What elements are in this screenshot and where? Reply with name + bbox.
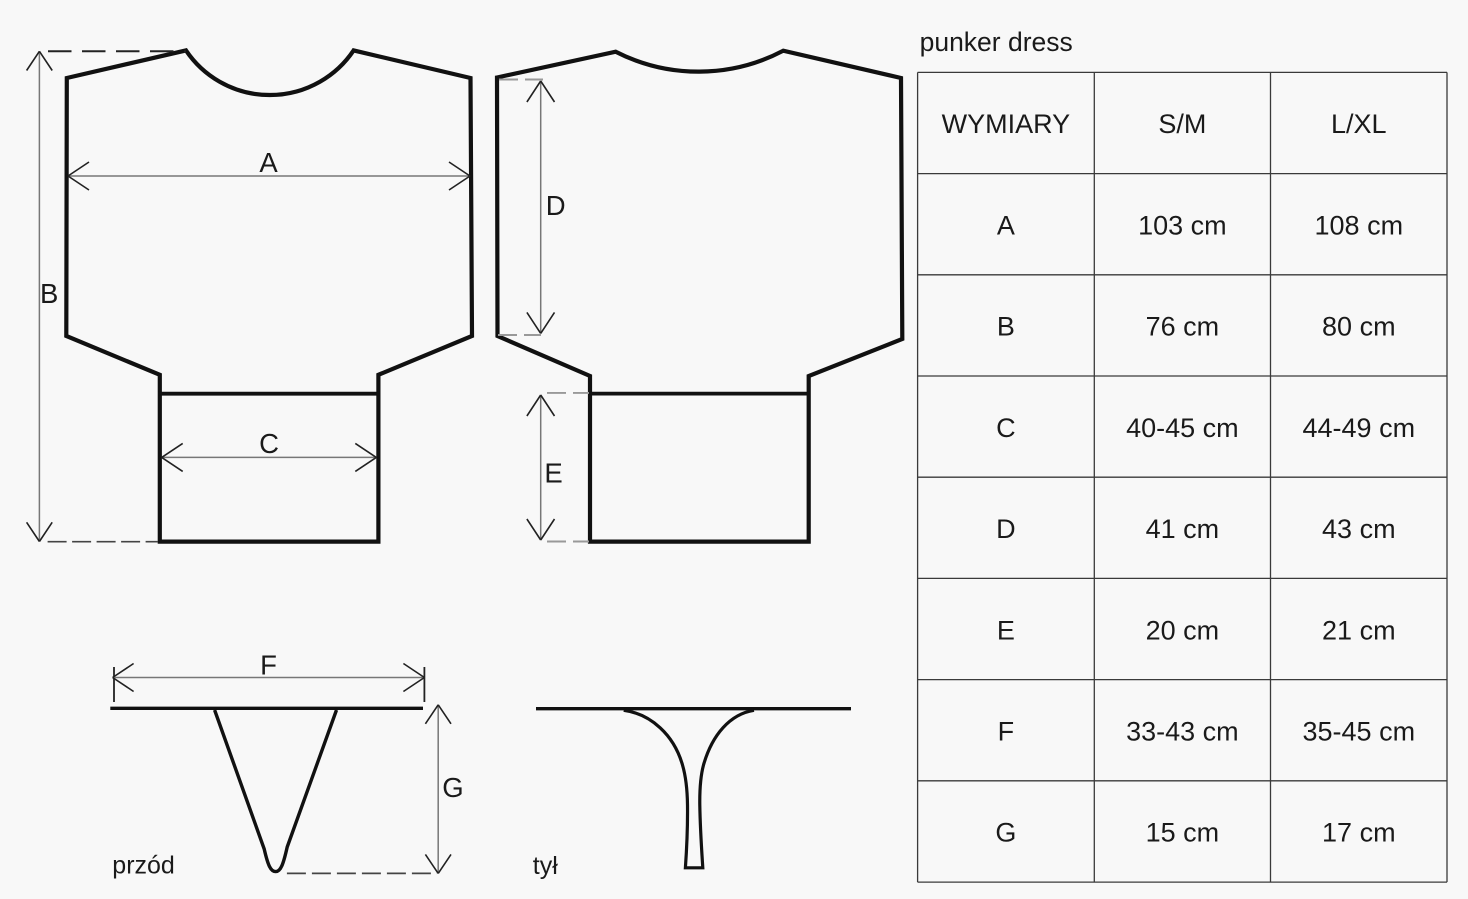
svg-text:G: G bbox=[995, 818, 1016, 848]
svg-text:C: C bbox=[996, 413, 1016, 443]
svg-text:D: D bbox=[546, 190, 566, 221]
svg-text:tył: tył bbox=[533, 852, 558, 880]
svg-text:E: E bbox=[544, 458, 562, 489]
svg-text:L/XL: L/XL bbox=[1331, 109, 1387, 139]
svg-text:D: D bbox=[996, 514, 1016, 544]
svg-text:przód: przód bbox=[112, 851, 175, 879]
svg-text:41 cm: 41 cm bbox=[1146, 514, 1220, 544]
svg-text:15 cm: 15 cm bbox=[1146, 818, 1220, 848]
svg-text:C: C bbox=[259, 428, 279, 459]
svg-text:G: G bbox=[442, 772, 463, 803]
svg-text:80 cm: 80 cm bbox=[1322, 312, 1396, 342]
svg-text:108 cm: 108 cm bbox=[1315, 211, 1404, 241]
svg-text:B: B bbox=[40, 278, 58, 309]
svg-text:43 cm: 43 cm bbox=[1322, 514, 1396, 544]
svg-text:40-45 cm: 40-45 cm bbox=[1126, 413, 1239, 443]
svg-text:F: F bbox=[998, 717, 1015, 747]
svg-text:103 cm: 103 cm bbox=[1138, 211, 1227, 241]
svg-text:punker dress: punker dress bbox=[920, 27, 1073, 57]
svg-text:A: A bbox=[259, 147, 278, 178]
svg-text:21 cm: 21 cm bbox=[1322, 615, 1396, 645]
svg-text:20 cm: 20 cm bbox=[1146, 615, 1220, 645]
svg-text:76 cm: 76 cm bbox=[1146, 312, 1220, 342]
svg-text:F: F bbox=[260, 650, 277, 681]
svg-text:WYMIARY: WYMIARY bbox=[942, 109, 1071, 139]
svg-text:S/M: S/M bbox=[1158, 109, 1206, 139]
svg-text:44-49 cm: 44-49 cm bbox=[1303, 413, 1416, 443]
svg-text:35-45 cm: 35-45 cm bbox=[1303, 717, 1416, 747]
svg-text:E: E bbox=[997, 615, 1015, 645]
svg-text:17 cm: 17 cm bbox=[1322, 818, 1396, 848]
svg-text:33-43 cm: 33-43 cm bbox=[1126, 717, 1239, 747]
svg-text:B: B bbox=[997, 312, 1015, 342]
svg-text:A: A bbox=[997, 211, 1015, 241]
